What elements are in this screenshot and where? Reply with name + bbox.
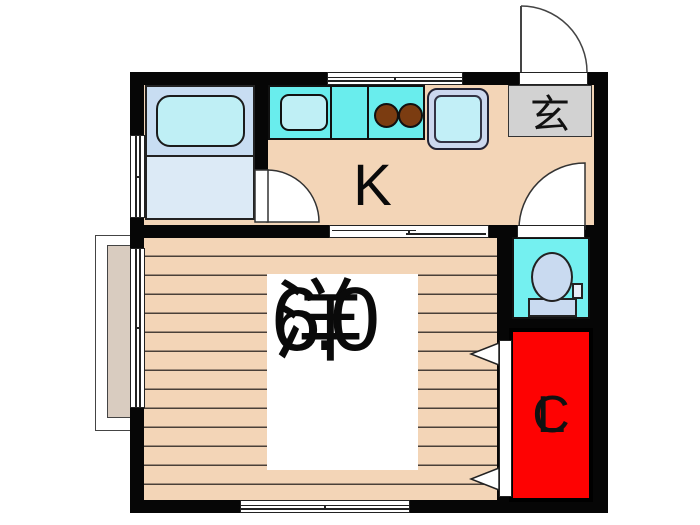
window-room-left [130, 248, 145, 408]
entrance-area: 玄 [508, 85, 592, 137]
entrance-door-opening [519, 72, 588, 85]
window-kitchen-top [327, 72, 463, 85]
washing-machine-tub [434, 95, 482, 143]
entrance-label: 玄 [530, 82, 570, 140]
stove-burner-icon [398, 103, 423, 128]
closet-label-l: L [537, 387, 566, 443]
bathtub-icon [156, 95, 245, 147]
kitchen-label: K [340, 152, 405, 220]
bath-partition-wall [255, 85, 268, 170]
washing-machine-pan-icon [427, 88, 489, 150]
stove-burner-icon [374, 103, 399, 128]
floor-plan: 玄 C L [0, 0, 700, 525]
closet-door-arrows [470, 340, 500, 497]
room-label: 洋 6.0 [267, 274, 418, 470]
entrance-door-arc [513, 2, 595, 74]
bath-wet-area [147, 87, 253, 157]
unit-bath [145, 85, 255, 220]
toilet-bowl-icon [531, 252, 573, 302]
counter-divider [330, 87, 332, 138]
toilet-door [517, 225, 585, 238]
room-size-label: 6.0 [271, 278, 372, 363]
bath-door-arc [252, 167, 324, 225]
closet-door [499, 340, 512, 497]
closet: C L [509, 328, 593, 502]
toilet-handle-icon [572, 283, 583, 299]
window-room-bottom [240, 500, 410, 513]
sliding-door-kitchen-room [329, 225, 489, 238]
counter-divider [367, 87, 369, 138]
window-bath-left [130, 135, 145, 218]
sink-icon [280, 94, 328, 131]
